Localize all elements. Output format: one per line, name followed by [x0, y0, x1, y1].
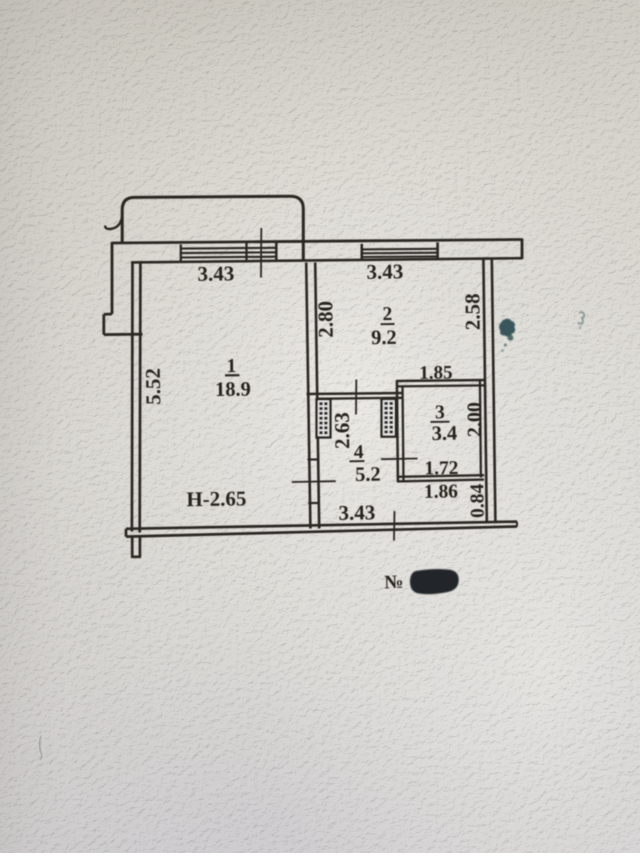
svg-text:2.00: 2.00	[464, 402, 486, 437]
svg-text:№: №	[384, 572, 404, 594]
svg-text:9.2: 9.2	[371, 327, 397, 349]
svg-text:2.58: 2.58	[460, 293, 485, 330]
svg-text:2.63: 2.63	[330, 412, 355, 449]
svg-text:2.80: 2.80	[313, 301, 338, 338]
svg-text:3.43: 3.43	[197, 261, 234, 286]
svg-text:3.43: 3.43	[338, 500, 375, 525]
svg-text:2: 2	[382, 304, 392, 325]
svg-text:1.85: 1.85	[419, 362, 453, 383]
svg-text:0.84: 0.84	[467, 483, 488, 518]
svg-text:3.4: 3.4	[431, 423, 457, 445]
svg-text:1: 1	[226, 356, 236, 377]
svg-text:5.2: 5.2	[355, 464, 381, 486]
svg-text:1.86: 1.86	[424, 481, 459, 502]
svg-text:H-2.65: H-2.65	[186, 486, 246, 511]
svg-text:5.52: 5.52	[141, 368, 166, 405]
svg-text:1.72: 1.72	[424, 458, 458, 479]
svg-text:3: 3	[435, 402, 445, 423]
svg-text:18.9: 18.9	[215, 379, 251, 401]
svg-text:3.43: 3.43	[366, 259, 403, 284]
svg-text:4: 4	[354, 442, 364, 463]
